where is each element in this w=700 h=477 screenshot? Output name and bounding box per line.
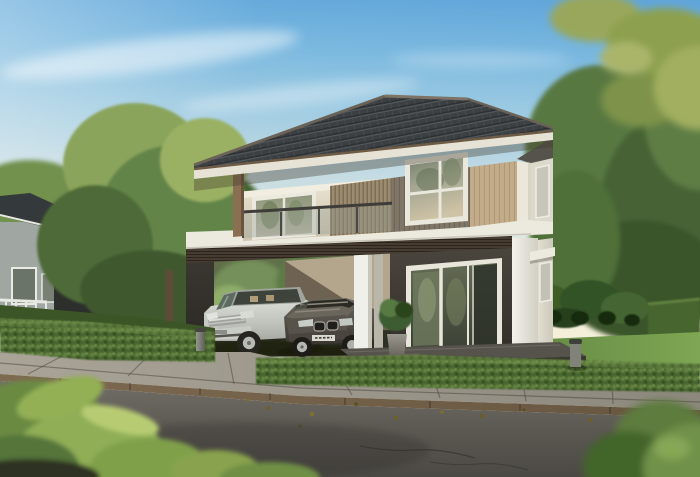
carport-column-front [354, 243, 372, 357]
main-house [186, 96, 586, 371]
cloud-wisps [0, 21, 570, 118]
ground-floor-sliding-door [406, 258, 502, 351]
bollard-light-left [195, 328, 206, 351]
house-render-image [0, 0, 700, 477]
scene-illustration [0, 0, 700, 477]
ground-floor-front-wall [390, 241, 512, 352]
carport-column-rear [374, 247, 383, 349]
